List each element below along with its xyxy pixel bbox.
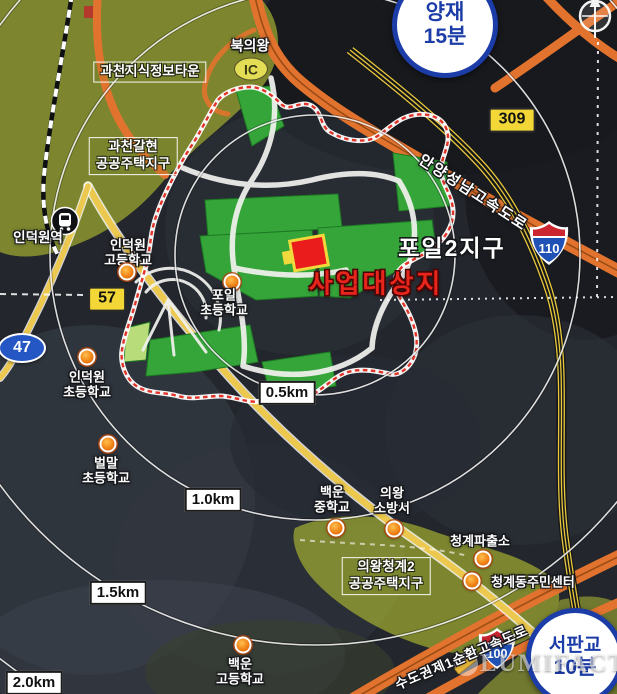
poi-label-cheonggye-community-center: 청계동주민센터 — [491, 574, 575, 589]
poi-label-baekun-middle: 백운중학교 — [314, 485, 350, 516]
area-label-uiwang-cheonggye2: 의왕청계2 공공주택지구 — [342, 557, 431, 595]
watermark-text: LUMIFACT — [480, 650, 617, 678]
station-label: 인덕원역 — [13, 230, 63, 246]
site-title: 사업대상지 — [309, 264, 444, 301]
ring-label-1-5km: 1.5km — [90, 581, 147, 605]
poi-label-baekun-high: 백운고등학교 — [216, 657, 264, 688]
poi-label-uiwang-fire-station: 의왕소방서 — [374, 486, 410, 517]
ring-label-2-0km: 2.0km — [6, 671, 63, 694]
interchange-name: 북의왕 — [231, 38, 270, 55]
poi-dot-cheonggye-police — [475, 551, 492, 568]
poi-dot-indeokwon-high — [119, 264, 136, 281]
district-title: 포일2지구 — [398, 229, 505, 263]
poi-dot-indeokwon-elementary — [79, 349, 96, 366]
poi-dot-baekun-high — [235, 637, 252, 654]
ring-label-1-0km: 1.0km — [185, 488, 242, 512]
satellite-location-map: 110 100 — [0, 0, 617, 694]
poi-label-beolmal-elementary: 벌말초등학교 — [82, 456, 130, 487]
interchange-ic-oval: IC — [234, 58, 268, 81]
poi-label-poil-elementary: 포일초등학교 — [200, 288, 248, 319]
ring-label-0-5km: 0.5km — [259, 381, 316, 405]
poi-dot-cheonggye-community-center — [464, 573, 481, 590]
poi-label-indeokwon-elementary: 인덕원초등학교 — [63, 370, 111, 401]
poi-label-cheonggye-police: 청계파출소 — [450, 533, 510, 548]
poi-dot-beolmal-elementary — [100, 436, 117, 453]
travel-time: 15분 — [424, 25, 467, 49]
travel-destination: 양재 — [426, 1, 465, 25]
area-label-gwacheon-knowledge-town: 과천지식정보타운 — [93, 62, 206, 83]
route-309-badge: 309 — [489, 108, 536, 133]
poi-dot-baekun-middle — [328, 520, 345, 537]
route-47-oval: 47 — [0, 333, 46, 363]
poi-dot-uiwang-fire-station — [386, 521, 403, 538]
svg-text:110: 110 — [539, 241, 560, 256]
route-57-badge: 57 — [88, 287, 126, 312]
area-label-gwacheon-galhyeon: 과천갈현 공공주택지구 — [89, 137, 178, 175]
